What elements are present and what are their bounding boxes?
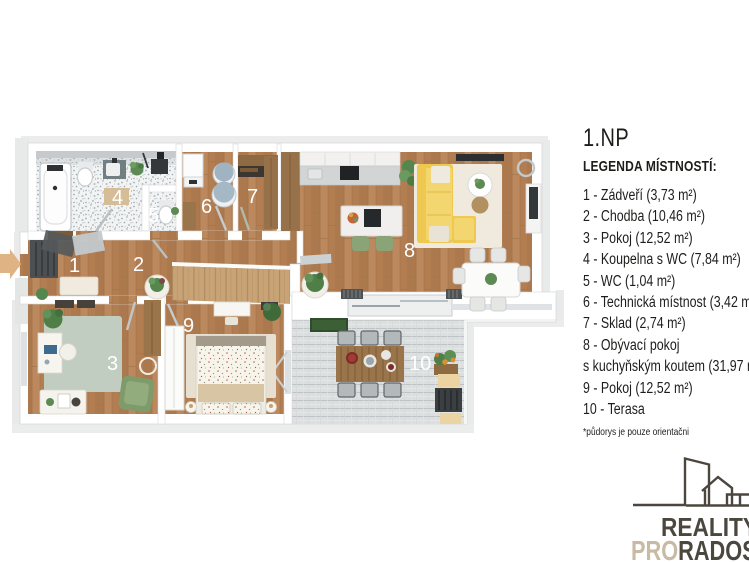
svg-text:9: 9 xyxy=(183,315,194,337)
svg-text:7: 7 xyxy=(247,186,258,208)
svg-text:6: 6 xyxy=(201,196,212,218)
svg-text:PRORADOST: PRORADOST xyxy=(631,535,749,562)
svg-text:5: 5 xyxy=(148,205,159,227)
svg-text:2: 2 xyxy=(133,254,144,276)
svg-text:1: 1 xyxy=(69,255,80,277)
svg-text:3: 3 xyxy=(107,353,118,375)
svg-text:8: 8 xyxy=(404,240,415,262)
svg-text:10: 10 xyxy=(409,353,431,375)
svg-text:4: 4 xyxy=(112,187,123,209)
